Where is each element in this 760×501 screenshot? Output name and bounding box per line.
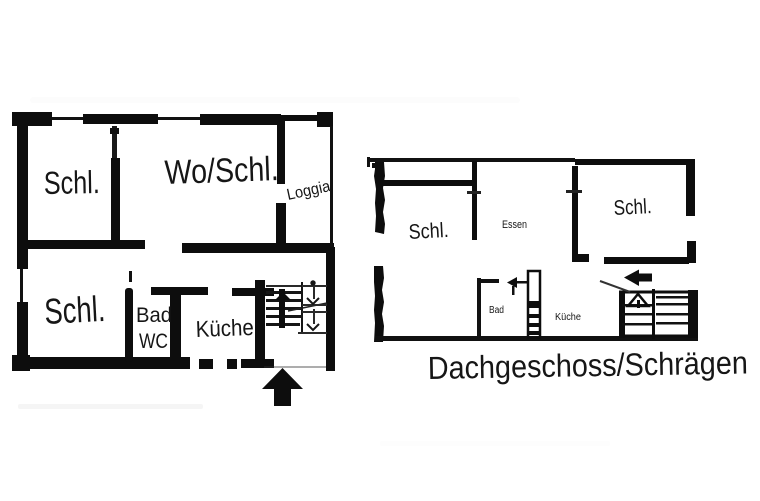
svg-text:Bad: Bad [136, 304, 172, 327]
svg-text:Schl.: Schl. [43, 288, 106, 332]
svg-text:Küche: Küche [195, 314, 254, 342]
svg-text:Essen: Essen [502, 219, 527, 231]
svg-text:Bad: Bad [489, 305, 504, 316]
svg-text:WC: WC [139, 330, 168, 353]
svg-text:Dachgeschoss/Schrägen: Dachgeschoss/Schrägen [427, 344, 748, 386]
svg-text:Küche: Küche [555, 312, 581, 323]
svg-text:Schl.: Schl. [408, 219, 449, 244]
svg-text:Wo/Schl.: Wo/Schl. [164, 150, 279, 192]
svg-text:Schl.: Schl. [613, 195, 652, 220]
svg-text:Schl.: Schl. [43, 164, 100, 201]
